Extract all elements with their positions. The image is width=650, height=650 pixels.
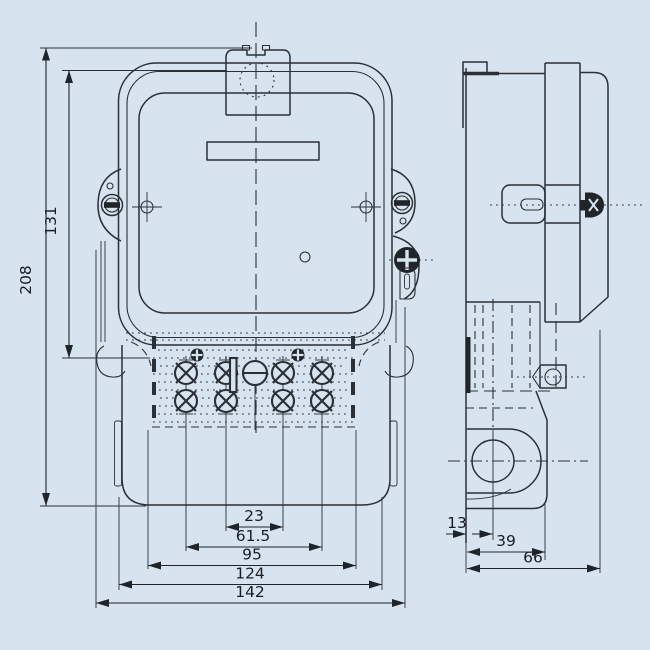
right-seal-ear [359, 169, 433, 377]
terminal-screw-icon [175, 362, 197, 384]
inspection-hole [300, 252, 310, 262]
side-extension-lines [466, 330, 600, 573]
small-seal-screw-icon [292, 349, 305, 362]
center-slotted-screw-icon [243, 361, 267, 430]
fixing-screw-left-icon [132, 192, 162, 222]
case-side-strip [545, 63, 580, 322]
hanger-hook-side [463, 62, 545, 128]
voltage-link [230, 358, 237, 392]
dim-label-outer-spacing: 61.5 [236, 527, 271, 545]
meter-case [119, 63, 393, 345]
dim-label-terminal-block-width: 95 [242, 546, 262, 564]
dim-label-overall-width: 142 [235, 583, 265, 601]
front-view: 208 131 23 61.5 95 124 142 [17, 22, 433, 608]
side-view: 13 39 66 [446, 62, 646, 573]
dim-label-hole-offset: 13 [447, 514, 467, 532]
front-extension-lines [40, 48, 405, 608]
terminal-screw-icon [175, 390, 197, 412]
knurled-seal-screw-icon [580, 193, 604, 218]
seal-screw-right-icon [392, 193, 413, 214]
front-dimensions: 208 131 23 61.5 95 124 142 [17, 48, 405, 603]
register-window [207, 142, 319, 160]
hidden-hook-hole [240, 63, 274, 97]
small-seal-screw-icon [191, 349, 204, 362]
cover-seal-screw-icon [394, 247, 420, 273]
terminal-screw-icon [311, 390, 333, 412]
dim-label-overall-depth: 66 [523, 549, 543, 567]
dim-label-body-height: 131 [42, 206, 60, 236]
left-seal-ear [97, 169, 151, 377]
dim-label-inner-spacing: 23 [244, 507, 264, 525]
hanger-hook [226, 46, 290, 116]
dim-label-case-width: 124 [235, 565, 265, 583]
terminal-screw-icon [272, 390, 294, 412]
seal-screw-left-icon [102, 195, 123, 216]
dim-label-terminal-cover-depth: 39 [496, 532, 516, 550]
drawing-svg: 208 131 23 61.5 95 124 142 [0, 0, 650, 650]
terminal-screw-icon [272, 362, 294, 384]
side-dimensions: 13 39 66 [446, 514, 600, 569]
side-seal-ear [517, 365, 587, 388]
side-terminal-section [448, 299, 588, 540]
terminal-screw-icon [311, 362, 333, 384]
fixing-screw-right-icon [351, 192, 381, 222]
left-hinge-hook [97, 346, 125, 377]
terminal-screw-icon [215, 390, 237, 412]
side-ear-block [490, 185, 646, 223]
dim-label-overall-height: 208 [17, 265, 35, 295]
meter-dimension-drawing: 208 131 23 61.5 95 124 142 [0, 0, 650, 650]
